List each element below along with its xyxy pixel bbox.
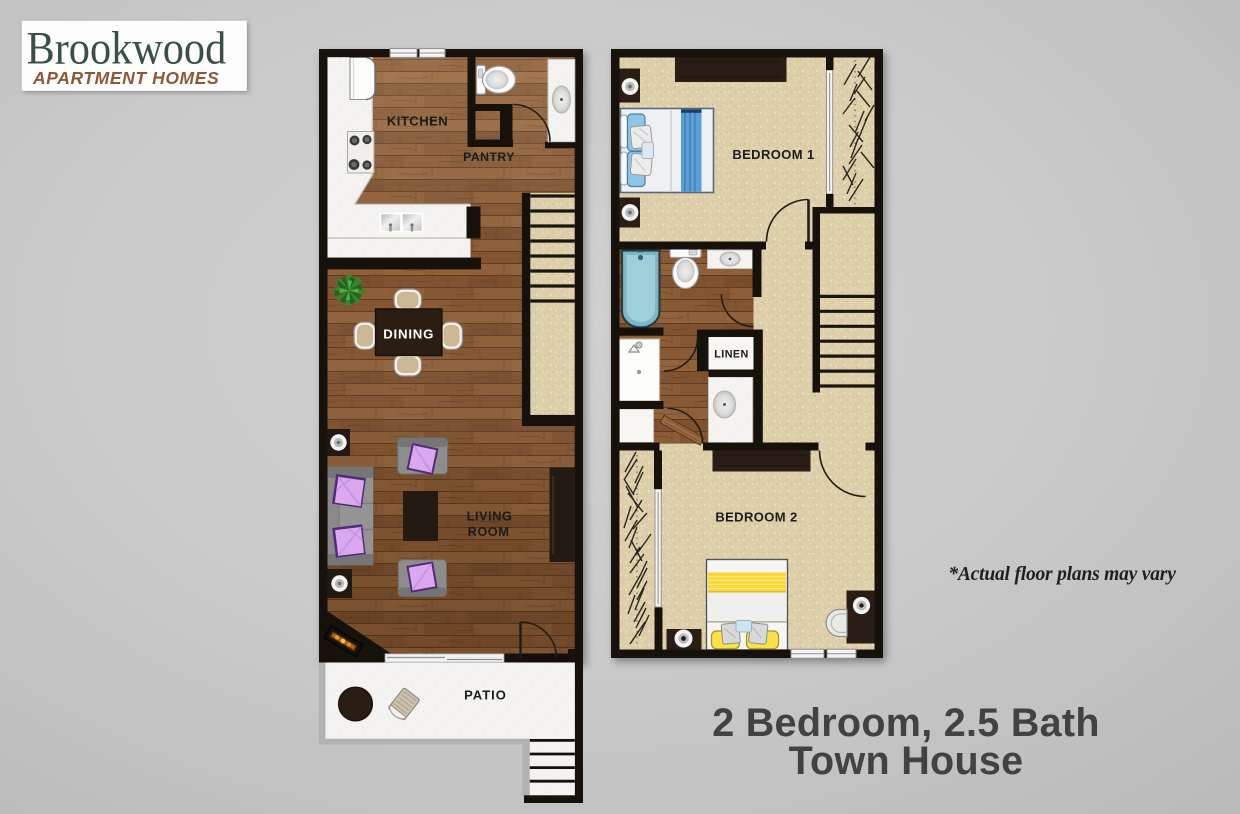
svg-text:KITCHEN: KITCHEN xyxy=(387,114,448,129)
svg-text:LIVING: LIVING xyxy=(467,509,513,524)
svg-text:DINING: DINING xyxy=(383,327,434,342)
svg-text:ROOM: ROOM xyxy=(468,524,510,539)
svg-text:Brookwood: Brookwood xyxy=(27,21,227,74)
svg-text:*Actual floor plans may vary: *Actual floor plans may vary xyxy=(948,564,1176,585)
svg-text:PANTRY: PANTRY xyxy=(463,150,515,164)
svg-text:PATIO: PATIO xyxy=(464,688,507,703)
svg-text:LINEN: LINEN xyxy=(714,349,748,361)
svg-text:APARTMENT HOMES: APARTMENT HOMES xyxy=(32,68,219,88)
svg-text:Town House: Town House xyxy=(789,739,1024,783)
svg-text:BEDROOM 1: BEDROOM 1 xyxy=(732,147,814,162)
svg-text:BEDROOM 2: BEDROOM 2 xyxy=(715,509,797,524)
